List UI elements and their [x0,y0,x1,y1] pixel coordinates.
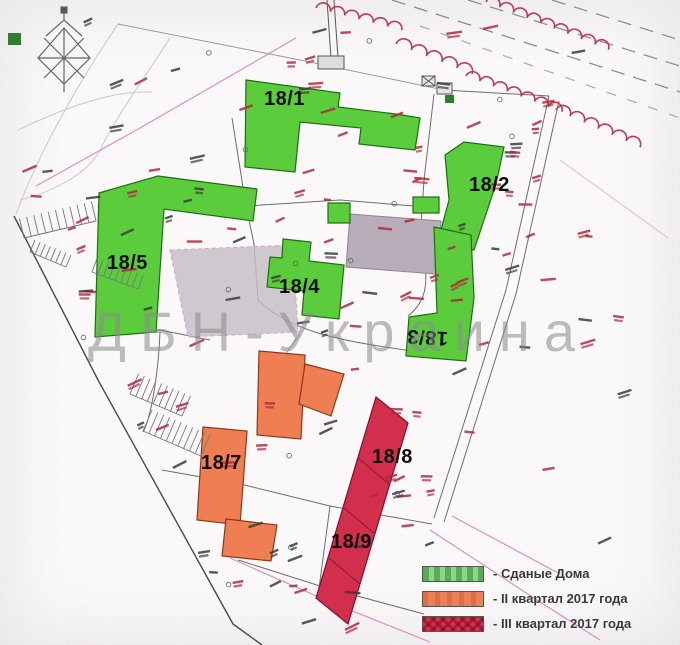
legend-swatch-q2-2017 [422,591,484,607]
legend-swatch-q3-2017 [422,616,484,632]
pole-structure [318,0,452,94]
green-marker [8,33,21,45]
building-label-18-9: 18/9 [331,531,372,554]
legend-label-q2-2017: - II квартал 2017 года [493,591,628,606]
green-marker [445,95,454,103]
building-label-18-8: 18/8 [372,446,413,469]
legend: - Сданые Дома - II квартал 2017 года - I… [422,565,631,632]
legend-row-q2-2017: - II квартал 2017 года [422,590,631,607]
legend-label-delivered: - Сданые Дома [493,566,589,581]
slope-hatch-line [556,105,641,147]
building-label-18-5: 18/5 [107,252,148,275]
legend-row-delivered: - Сданые Дома [422,565,631,582]
parking-rows [30,240,71,267]
building-label-18-1: 18/1 [264,88,305,111]
parking-rows [143,410,210,456]
legend-swatch-delivered [422,566,484,582]
building-label-18-3: 18/3 [406,324,448,349]
slope-hatch-line [486,0,609,50]
building-label-18-7: 18/7 [201,452,242,475]
building-label-18-2: 18/2 [469,174,510,197]
legend-label-q3-2017: - III квартал 2017 года [493,616,631,631]
site-plan-scan: 18/1 18/2 18/3 18/4 18/5 18/7 18/8 18/9 … [0,0,680,645]
buildings-delivered [95,80,504,361]
slope-hatch-line [396,39,473,74]
legend-row-q3-2017: - III квартал 2017 года [422,615,631,632]
sports-field-area [346,214,441,274]
building-label-18-4: 18/4 [279,276,320,299]
